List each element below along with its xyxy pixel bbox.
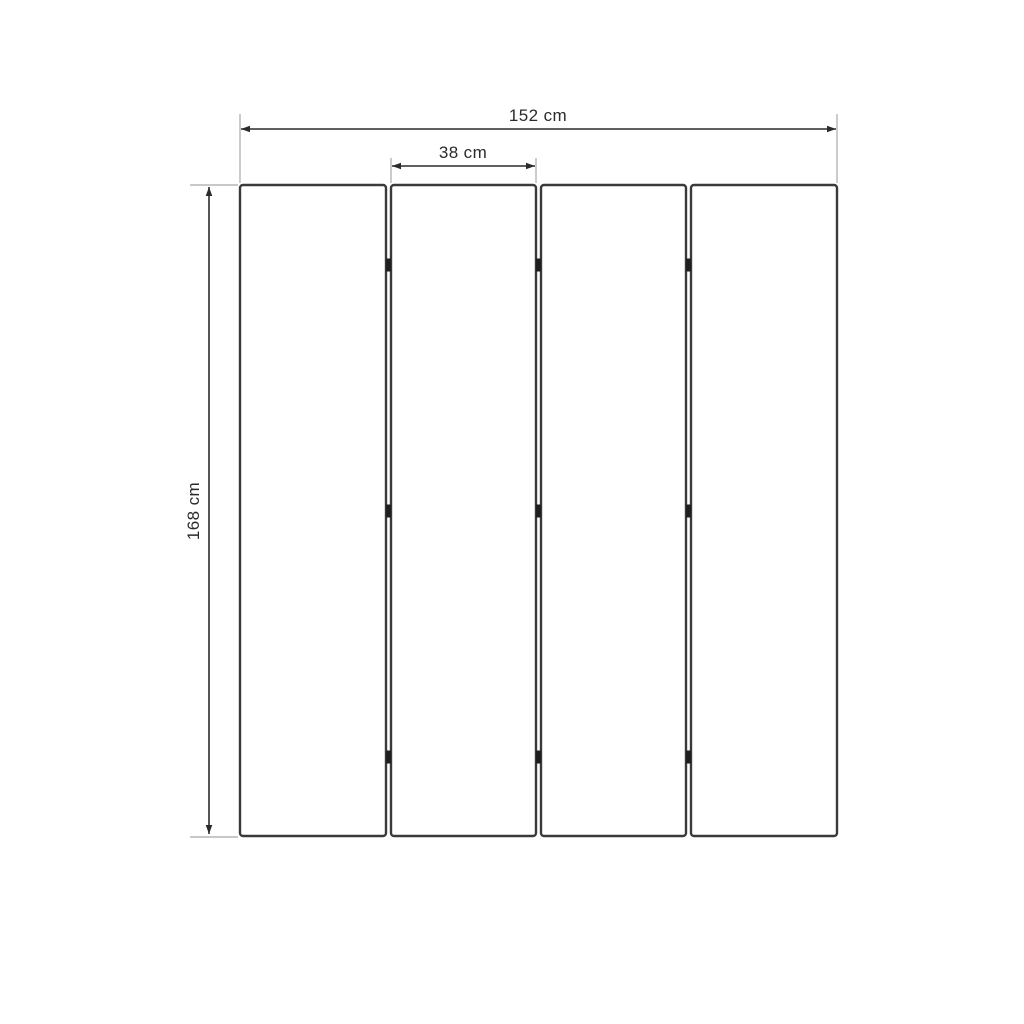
panel-width-dimension: 38 cm [392,143,535,169]
total-width-dimension: 152 cm [241,106,836,132]
hinge-gap2-middle [536,505,541,518]
arrowhead-left-icon [241,126,250,133]
hinge-gap1-top [386,259,391,272]
hinge-gap1-middle [386,505,391,518]
panel-4 [691,185,837,836]
hinge-gap1-bottom [386,751,391,764]
total-width-label: 152 cm [509,106,567,125]
hinge-gap2-bottom [536,751,541,764]
height-label: 168 cm [184,482,203,540]
height-dimension: 168 cm [184,187,212,834]
hinge-gap3-top [686,259,691,272]
arrowhead-right-icon [827,126,836,133]
panel-width-label: 38 cm [439,143,487,162]
arrowhead-up-icon [206,187,213,196]
panel-1 [240,185,386,836]
hinge-gap3-bottom [686,751,691,764]
arrowhead-down-icon [206,825,213,834]
arrowhead-left-icon [392,163,401,170]
arrowhead-right-icon [526,163,535,170]
panel-2 [391,185,536,836]
folding-screen-dimension-drawing: 152 cm 38 cm 168 cm [0,0,1024,1024]
hinge-gap2-top [536,259,541,272]
hinge-gap3-middle [686,505,691,518]
panel-3 [541,185,686,836]
dimension-diagram: 152 cm 38 cm 168 cm [0,0,1024,1024]
